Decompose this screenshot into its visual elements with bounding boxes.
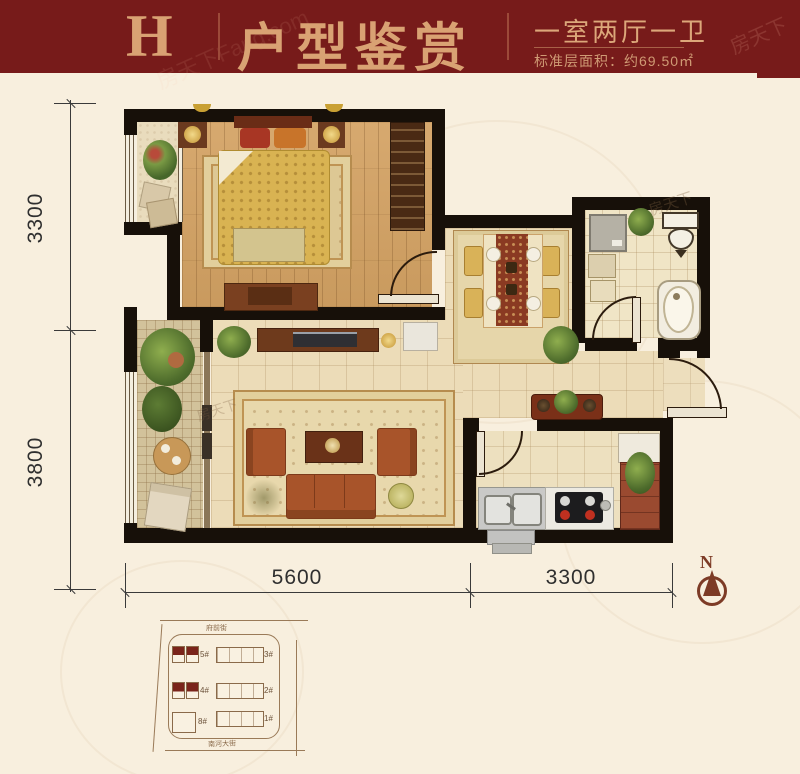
dim-ext: [672, 563, 673, 608]
site-building-1: [216, 711, 264, 727]
bath-sink: [590, 280, 616, 302]
site-building-5b: [186, 646, 199, 663]
dim-ext: [54, 589, 96, 590]
kitchen-door-leaf: [476, 431, 485, 477]
bed-pillow-red: [240, 128, 270, 148]
page-title: 户型鉴赏: [237, 6, 473, 81]
bed-sheet-fold: [219, 151, 253, 185]
balcony-chair: [144, 482, 192, 532]
bed-foot-bench: [233, 228, 305, 262]
sofa-cushion-line: [344, 475, 345, 508]
bathtub-drain: [673, 293, 680, 300]
site-building-label: 3#: [264, 650, 273, 659]
wall-bathroom-bottom-a: [585, 338, 637, 351]
header-divider-right: [507, 13, 509, 60]
place-setting: [526, 247, 541, 262]
toilet-mark: [675, 250, 687, 258]
site-building-label: 4#: [200, 686, 209, 695]
balcony-flower-plant: [143, 140, 177, 180]
dining-table-runner: [496, 234, 528, 326]
dim-ext: [54, 330, 96, 331]
kitchen-window-ledge: [492, 543, 532, 554]
burner: [560, 496, 570, 506]
console-plant: [554, 390, 578, 414]
washer-controls: [612, 240, 622, 246]
bedroom-balcony-window: [125, 135, 136, 222]
bedroom-door-leaf: [378, 294, 439, 304]
dim-ext: [125, 563, 126, 608]
burner-hot: [585, 510, 595, 520]
bathroom-door-leaf: [632, 297, 641, 343]
wardrobe: [390, 122, 425, 231]
bed-pillow-orange: [274, 128, 306, 148]
console-bowl: [583, 399, 596, 412]
wall-entry-pillar: [658, 338, 680, 358]
balcony-door-panel: [202, 405, 212, 431]
place-setting: [486, 296, 501, 311]
wall-kitchen-left: [463, 418, 476, 543]
dim-ext: [470, 563, 471, 608]
site-building-label: 2#: [264, 686, 273, 695]
dim-label-5600: 5600: [257, 566, 337, 590]
wall-left-mid: [124, 307, 137, 372]
site-building-label: 5#: [200, 650, 209, 659]
dining-palm-plant: [543, 326, 579, 364]
plant-by-tv: [217, 326, 251, 358]
site-building-label: 1#: [264, 714, 273, 723]
lamp-gold: [381, 333, 396, 348]
sofa-cushion-line: [314, 475, 315, 508]
wall-balcony-pillar: [200, 320, 213, 352]
burner: [585, 496, 595, 506]
siteplan-road-right: [296, 640, 297, 756]
dining-chair: [541, 288, 560, 318]
dim-label-3300-left: 3300: [24, 188, 48, 248]
balcony-round-table: [153, 437, 191, 475]
table-cup: [161, 444, 170, 453]
toilet-tank: [662, 212, 699, 229]
living-balcony-window: [125, 372, 136, 523]
dining-chair: [464, 246, 483, 276]
sink-basin: [512, 493, 542, 526]
compass-arrow: [703, 570, 721, 596]
dim-left-line: [70, 100, 71, 592]
wall-bottom: [124, 528, 673, 543]
coffee-table-bowl: [325, 438, 340, 453]
wall-kitchen-right: [660, 418, 673, 543]
floorplan-card: 房天下Fang.com 房天下 H 户型鉴赏 一室两厅一卫 标准层面积：约69.…: [0, 0, 800, 774]
dim-ext: [54, 103, 96, 104]
unit-letter: H: [126, 2, 173, 71]
siteplan-road-bottom-outer: [165, 750, 305, 751]
place-setting: [486, 247, 501, 262]
site-building-4b: [186, 682, 199, 699]
end-table: [403, 322, 438, 351]
street-name-top: 府前街: [206, 623, 227, 633]
plant-pot: [168, 352, 184, 368]
site-building-label: 8#: [198, 717, 207, 726]
entry-door-leaf: [667, 407, 727, 418]
wall-left-upper: [124, 109, 137, 135]
tv-panel: [293, 332, 357, 347]
site-building-3: [216, 647, 264, 663]
lamp-right: [323, 126, 340, 143]
washing-machine: [589, 214, 627, 252]
sink-basin: [484, 495, 512, 525]
kitchen-plant: [625, 452, 655, 494]
table-centerpiece: [506, 262, 517, 273]
wall-kitchen-top-stub: [463, 418, 479, 431]
armchair-right: [377, 428, 417, 476]
balcony-door-panel: [202, 433, 212, 459]
table-cup: [172, 456, 181, 465]
rug-plant-shadow: [246, 478, 282, 518]
site-building-2: [216, 683, 264, 699]
console-bowl: [537, 399, 550, 412]
bath-cabinet: [588, 254, 616, 278]
bed-headboard: [234, 116, 312, 128]
bedroom-dresser-top: [248, 287, 292, 305]
wall-bedroom-right: [432, 109, 445, 250]
dim-bottom-line: [125, 592, 673, 593]
site-building-5: [172, 646, 185, 663]
armchair-left: [246, 428, 286, 476]
bathroom-plant: [628, 208, 654, 236]
header-edge-step: [757, 72, 800, 78]
sofa: [286, 474, 376, 519]
wall-bathroom-left: [572, 197, 585, 343]
header-divider-left: [218, 13, 220, 60]
watermark-fang-header-right: 房天下: [725, 9, 792, 60]
stove-knob: [600, 500, 611, 511]
dim-label-3800-left: 3800: [24, 432, 48, 492]
layout-type-text: 一室两厅一卫: [534, 12, 708, 49]
site-building-8: [172, 712, 196, 733]
wall-hall-top: [432, 215, 585, 228]
siteplan-road-top-outer: [160, 620, 308, 621]
layout-underline: [534, 47, 684, 48]
dining-chair: [464, 288, 483, 318]
lamp-left: [184, 126, 201, 143]
entry-recess-floor: [663, 358, 705, 411]
balcony-pillow: [146, 198, 178, 228]
area-text: 标准层面积：约69.50㎡: [534, 51, 694, 71]
dim-label-3300-bottom: 3300: [531, 566, 611, 590]
table-centerpiece: [506, 284, 517, 295]
burner-hot: [560, 510, 570, 520]
dining-chair: [541, 246, 560, 276]
floor-pouf: [388, 483, 414, 509]
street-name-bottom: 南河大街: [208, 739, 236, 750]
site-building-4: [172, 682, 185, 699]
place-setting: [526, 296, 541, 311]
living-balcony-plant-small: [142, 386, 182, 432]
